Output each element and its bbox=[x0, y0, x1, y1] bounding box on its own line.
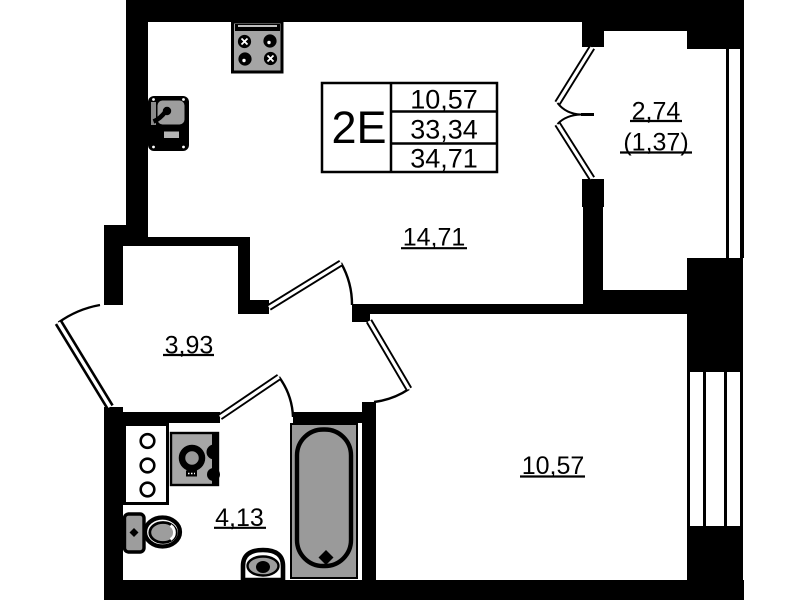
svg-text:34,71: 34,71 bbox=[410, 144, 478, 174]
svg-text:33,34: 33,34 bbox=[410, 115, 478, 145]
svg-text:2E: 2E bbox=[331, 102, 386, 153]
svg-text:10,57: 10,57 bbox=[410, 85, 478, 115]
